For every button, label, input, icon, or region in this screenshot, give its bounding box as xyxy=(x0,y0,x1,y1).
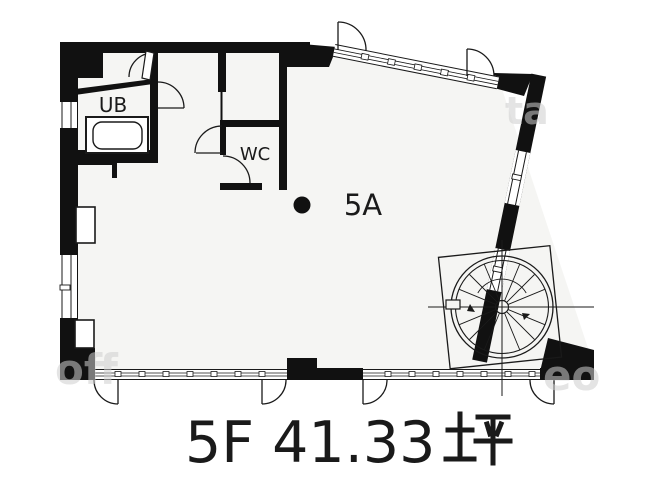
door-bottom-3 xyxy=(363,380,387,404)
caption: 5F 41.33 xyxy=(185,410,510,476)
room-label-wc: WC xyxy=(240,144,270,165)
room-label-ub: UB xyxy=(99,93,127,117)
floor-plan-svg: UB WC 5A ta off eo 5F 41.33 xyxy=(0,0,650,484)
bottom-window-band-left xyxy=(95,369,287,380)
tsubo-glyph xyxy=(446,414,510,463)
bathtub xyxy=(86,117,148,153)
floor-plan-image: UB WC 5A ta off eo 5F 41.33 xyxy=(0,0,650,484)
black-dot xyxy=(294,197,311,214)
room-label-unit: 5A xyxy=(344,188,382,222)
watermark-bottom-left: off xyxy=(55,345,119,394)
left-wall-recess-lower xyxy=(75,320,94,348)
watermark-bottom-right: eo xyxy=(543,351,600,400)
door-bottom-2 xyxy=(262,380,286,404)
left-wall-window-lower xyxy=(58,255,77,318)
left-wall-window-upper xyxy=(58,102,77,128)
watermark-top-right: ta xyxy=(505,89,549,133)
left-wall-recess-upper xyxy=(76,207,95,243)
bottom-window-band-right xyxy=(363,369,540,380)
caption-text: 5F 41.33 xyxy=(185,410,435,476)
